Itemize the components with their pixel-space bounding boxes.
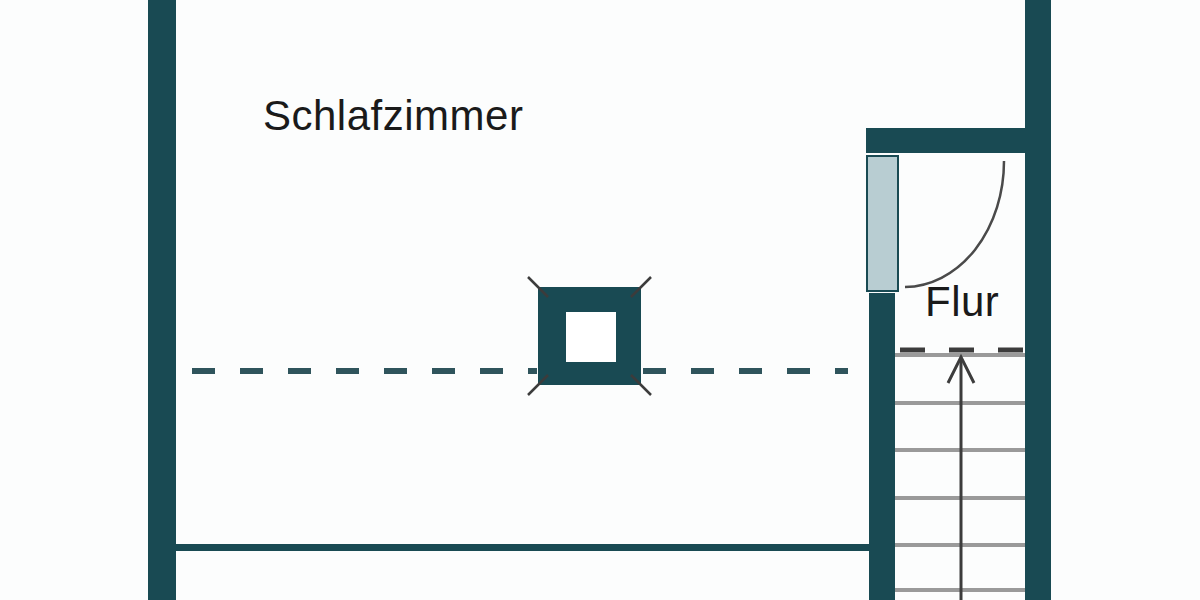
floor-plan: Schlafzimmer Flur (0, 0, 1200, 600)
room-label-hallway: Flur (925, 281, 999, 323)
column-corner-ticks (528, 277, 651, 395)
plan-linework (0, 0, 1200, 600)
stair-up-arrow-icon (948, 357, 974, 600)
door-swing-arc-icon (905, 161, 1004, 287)
room-label-bedroom: Schlafzimmer (263, 95, 523, 137)
